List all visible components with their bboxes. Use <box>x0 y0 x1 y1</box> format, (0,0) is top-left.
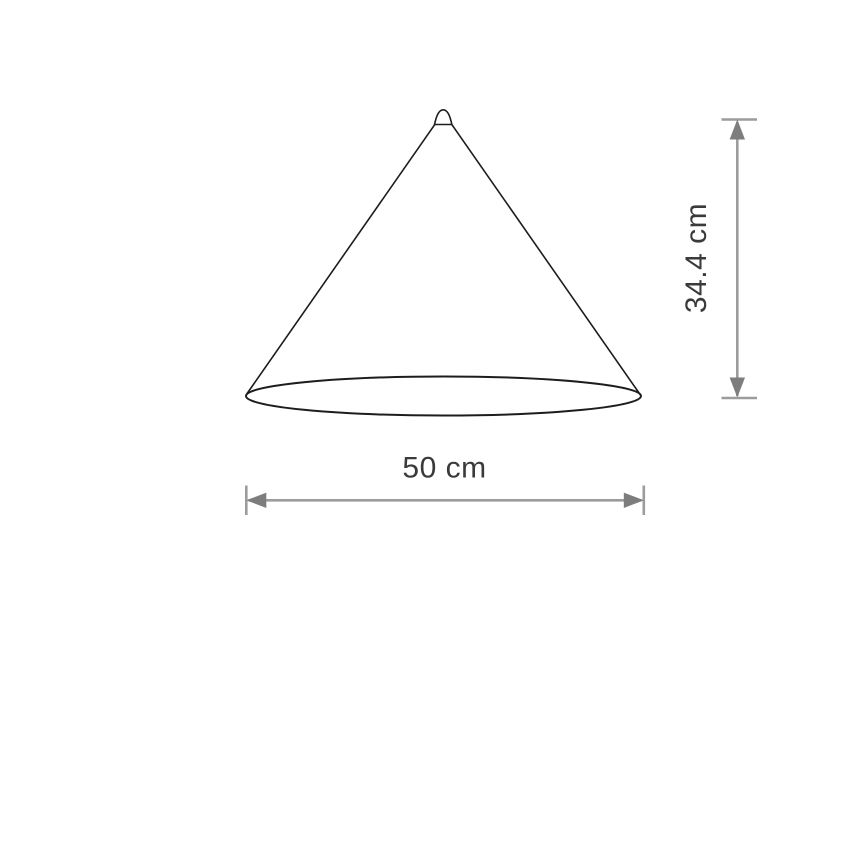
height-dimension-lines <box>722 120 758 399</box>
cone-lampshade-dimension-diagram: 34.4 cm 50 cm <box>0 0 868 868</box>
cone-outline <box>246 110 641 416</box>
width-dimension-label: 50 cm <box>402 452 486 485</box>
cone-apex-cap-arc <box>435 110 452 125</box>
cone-right-edge <box>452 125 641 396</box>
width-dimension: 50 cm <box>246 452 644 516</box>
height-dimension: 34.4 cm <box>680 120 757 399</box>
arrow-right-icon <box>624 493 644 508</box>
height-dimension-label: 34.4 cm <box>680 203 713 313</box>
dimension-drawing-canvas: 34.4 cm 50 cm <box>0 0 868 868</box>
arrow-up-icon <box>730 120 745 140</box>
arrow-left-icon <box>246 493 266 508</box>
cone-left-edge <box>246 125 434 395</box>
cone-base-ellipse <box>246 377 641 416</box>
width-dimension-lines <box>246 486 644 516</box>
arrow-down-icon <box>730 378 745 398</box>
